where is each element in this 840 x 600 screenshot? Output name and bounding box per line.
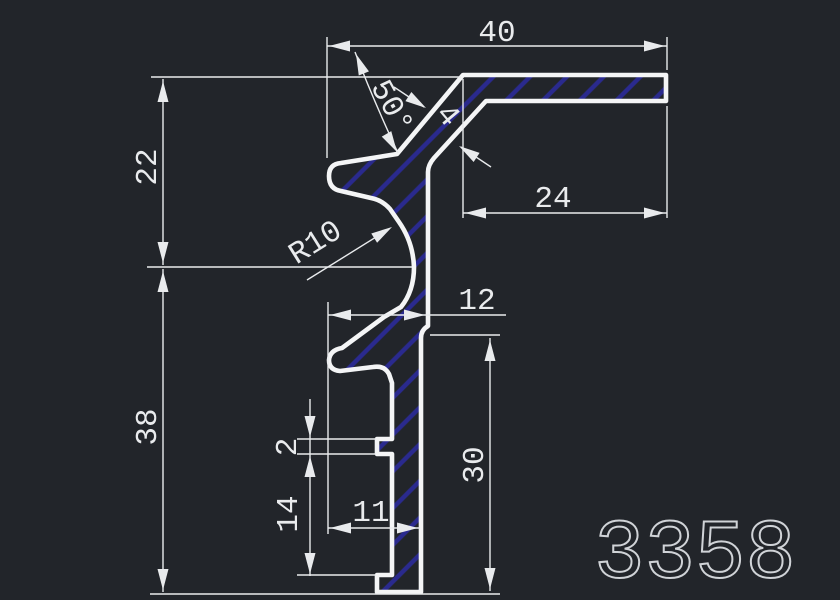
dim-overall-width: 40 — [478, 16, 515, 51]
dim-notch-height: 2 — [271, 438, 306, 457]
dim-flange-length: 24 — [534, 182, 571, 217]
dim-total-height: 38 — [131, 408, 166, 445]
cad-canvas: 40 24 12 11 22 38 30 2 14 50° 4 R10 3358 — [0, 0, 840, 600]
dim-foot-offset: 14 — [272, 495, 307, 532]
profile-drawing: 40 24 12 11 22 38 30 2 14 50° 4 R10 3358 — [0, 0, 840, 600]
part-number: 3358 — [594, 508, 796, 600]
dim-stem-height: 30 — [458, 446, 493, 483]
dim-step-width: 12 — [458, 284, 495, 319]
dim-stem-width: 11 — [352, 496, 389, 531]
dim-upper-height: 22 — [131, 148, 166, 185]
